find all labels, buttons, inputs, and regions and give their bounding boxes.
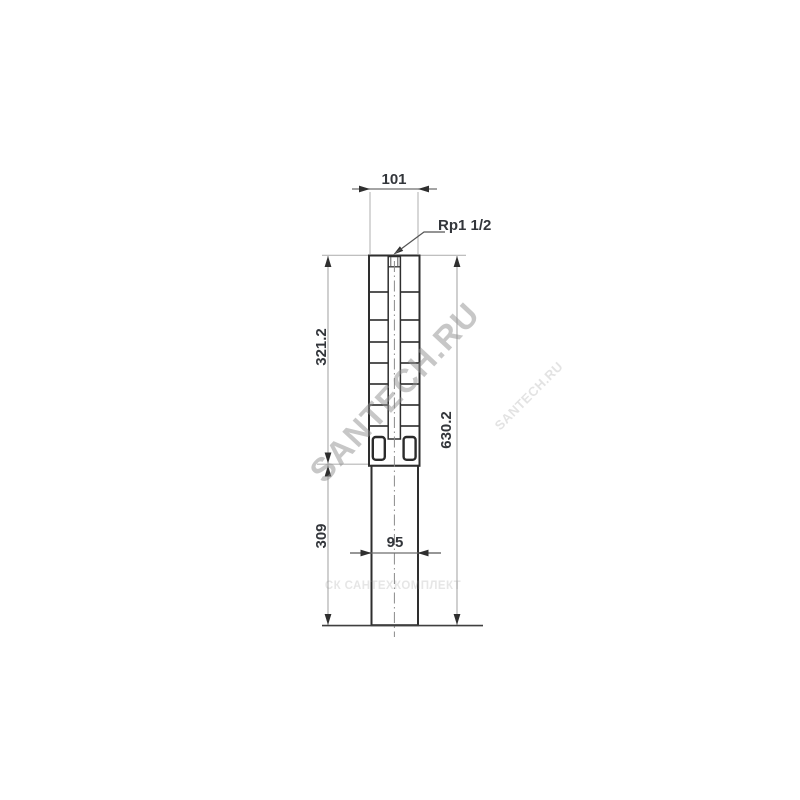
dim-630-arrow-bottom [454,614,461,625]
dim-309-label: 309 [313,523,330,548]
dim-95-arrow-right [418,550,429,557]
dim-95-label: 95 [387,534,404,551]
dim-101-label: 101 [381,171,406,188]
dim-95-arrow-left [361,550,372,557]
pump-dimensional-drawing: 101 Rp1 1/2 321.2 309 630.2 95 SANTECH.R… [0,0,800,800]
dim-630-arrow-top [454,256,461,267]
port-thread-label: Rp1 1/2 [438,217,491,234]
dim-101-arrow-left [359,186,370,193]
dim-309-arrow-bottom [325,614,332,625]
dim-321-label: 321.2 [313,328,330,366]
dim-101-arrow-right [418,186,429,193]
dim-321-arrow-top [325,256,332,267]
dim-630-label: 630.2 [438,411,455,449]
watermark-bottom: СК САНТЕХКОМПЛЕКТ [325,580,461,592]
inlet-slot-right [404,437,416,460]
drawing-svg: 101 Rp1 1/2 321.2 309 630.2 95 SANTECH.R… [0,0,800,800]
watermark-small: SANTECH.RU [492,359,566,433]
